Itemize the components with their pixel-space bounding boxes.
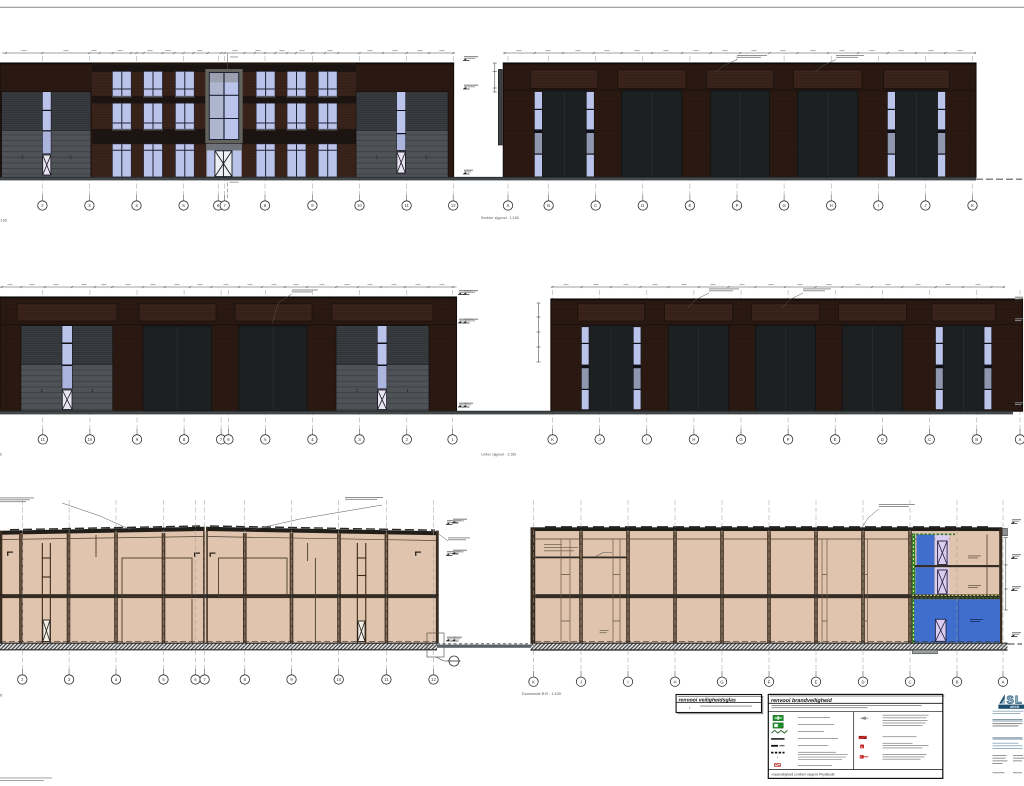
svg-text:I: I [646, 437, 647, 442]
svg-text:E: E [815, 679, 818, 684]
svg-text:K: K [532, 679, 535, 684]
svg-text:+: + [777, 756, 779, 760]
svg-text:F: F [736, 203, 739, 208]
svg-text:Doorsnede B-B - 1:100: Doorsnede B-B - 1:100 [522, 692, 561, 696]
svg-text:voorgevel - 1:100: voorgevel - 1:100 [0, 453, 2, 457]
svg-text:G: G [739, 437, 742, 442]
svg-text:B: B [956, 679, 959, 684]
svg-text:J: J [599, 437, 601, 442]
svg-text:A: A [1019, 437, 1022, 442]
svg-text:Doorsnede A-A - 1:100: Doorsnede A-A - 1:100 [0, 694, 2, 698]
svg-text:K: K [971, 203, 974, 208]
svg-text:10: 10 [88, 437, 93, 442]
svg-text:ARCH: ARCH [1010, 705, 1020, 709]
svg-text:A: A [1002, 679, 1005, 684]
svg-text:D: D [881, 437, 884, 442]
svg-text:maatveiligheid conform rapport: maatveiligheid conform rapport Physibuil… [772, 773, 835, 777]
svg-text:11: 11 [384, 677, 389, 682]
svg-text:achtergevel - 1:100: achtergevel - 1:100 [0, 219, 7, 223]
svg-text:F: F [861, 755, 863, 759]
svg-text:Rechter zijgevel - 1:100: Rechter zijgevel - 1:100 [481, 216, 519, 220]
svg-text:12: 12 [451, 203, 456, 208]
svg-text:J: J [924, 203, 926, 208]
svg-text:12: 12 [431, 677, 436, 682]
svg-text:11: 11 [41, 437, 46, 442]
svg-text:F: F [768, 679, 771, 684]
svg-text:Linker zijgevel - 1:100: Linker zijgevel - 1:100 [481, 453, 516, 457]
svg-text:11: 11 [404, 203, 409, 208]
svg-text:C: C [928, 437, 931, 442]
svg-text:10: 10 [357, 203, 362, 208]
svg-text:I: I [627, 679, 628, 684]
svg-text:renvooi brandveiligheid: renvooi brandveiligheid [771, 698, 833, 704]
svg-text:K: K [551, 437, 554, 442]
svg-text:renvooi veiligheidsglas: renvooi veiligheidsglas [679, 697, 736, 703]
svg-text:H: H [673, 679, 676, 684]
svg-text:G: G [720, 679, 723, 684]
svg-text:H: H [830, 203, 833, 208]
svg-text:C: C [908, 679, 911, 684]
svg-text:E: E [834, 437, 837, 442]
svg-text:10: 10 [336, 677, 341, 682]
svg-text:H: H [692, 437, 695, 442]
svg-text:A: A [507, 203, 510, 208]
svg-text:E: E [861, 745, 863, 749]
svg-text:E: E [689, 203, 692, 208]
svg-text:B: B [547, 203, 550, 208]
svg-text:B: B [975, 437, 978, 442]
svg-text:D: D [861, 679, 864, 684]
svg-text:I: I [878, 203, 879, 208]
svg-text:D: D [641, 203, 644, 208]
svg-text:G: G [782, 203, 785, 208]
svg-text:F: F [787, 437, 790, 442]
svg-text:J: J [580, 679, 582, 684]
svg-text:C: C [594, 203, 597, 208]
